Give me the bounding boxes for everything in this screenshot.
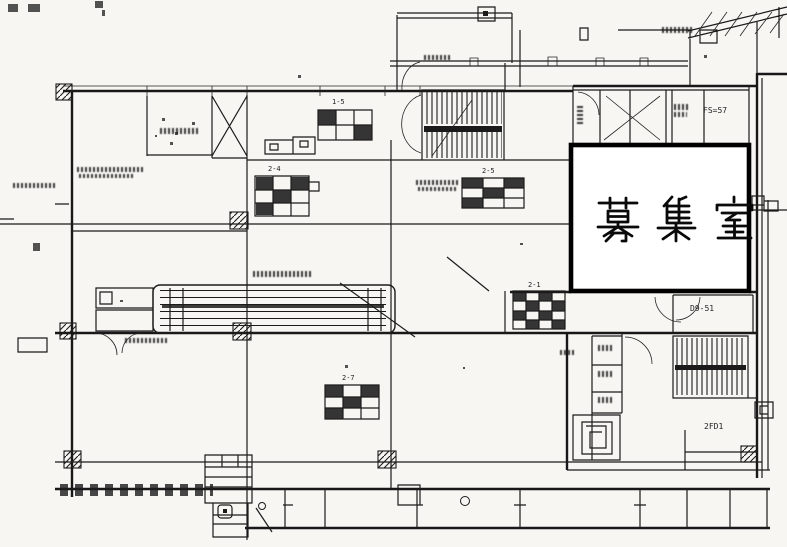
schedule-caption-2-7: 2-7 [342, 375, 355, 382]
label-d951: D9-51 [690, 305, 714, 313]
schedule-caption-2-4: 2-4 [268, 166, 281, 173]
illegible-text [674, 112, 687, 117]
schedule-caption-2-1: 2-1 [528, 282, 541, 289]
bottom-stair-hatch [676, 369, 746, 395]
hatched-wall-band [57, 484, 213, 496]
illegible-text [598, 371, 614, 377]
plan-drawing [0, 0, 787, 547]
illegible-text [125, 338, 167, 343]
drain-symbol [461, 497, 470, 506]
drain-symbol [259, 503, 266, 510]
label-2fd1: 2FD1 [704, 423, 723, 431]
illegible-text [418, 187, 458, 191]
illegible-text [598, 397, 612, 403]
top-stair-hatch [426, 130, 502, 158]
illegible-text [424, 55, 450, 60]
bottom-stair-landing [675, 365, 746, 370]
stair-mid-landing [424, 126, 502, 132]
main-room-label: 募集室 [590, 192, 760, 244]
illegible-text [598, 345, 614, 351]
illegible-text [416, 180, 460, 185]
scanned-linework [0, 1, 787, 540]
schedule-caption-2-5: 2-5 [482, 168, 495, 175]
illegible-text [160, 128, 198, 134]
bottom-stair-hatch [676, 338, 746, 365]
illegible-text [662, 27, 694, 33]
escalator-treads [160, 290, 386, 332]
schedule-caption-1-5: 1-5 [332, 99, 345, 106]
illegible-text [674, 104, 689, 110]
escalator-mid-band [162, 304, 384, 308]
illegible-text [577, 106, 583, 124]
illegible-text [560, 350, 575, 355]
label-fs57: FS=57 [703, 107, 727, 115]
illegible-text [253, 271, 311, 277]
illegible-text [13, 183, 57, 188]
illegible-text [79, 174, 135, 178]
top-stair-hatch [426, 92, 502, 124]
floor-plan: 募集室 FS=57 D9-51 2FD1 1-5 2-4 2-5 2-1 2-7 [0, 0, 787, 547]
schedule-table-cells [256, 110, 565, 419]
illegible-text [77, 167, 143, 172]
